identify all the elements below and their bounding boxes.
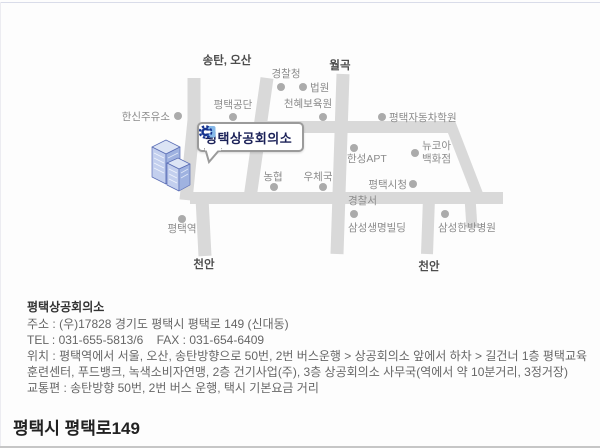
map-place-samsung-life-building: 삼성생명빌딩	[348, 210, 406, 234]
place-dot	[378, 113, 386, 121]
map-place-hanseong-apt: 한성APT	[347, 144, 387, 165]
location-line: 위치 : 평택역에서 서울, 오산, 송탄방향으로 50번, 2번 버스운행 >…	[27, 348, 590, 380]
road-segment	[202, 198, 205, 256]
map-place-pyeongtaek-industrial-complex: 평택공단	[214, 99, 253, 121]
place-label: 경찰청	[272, 67, 301, 80]
map-place-police-agency: 경찰청	[272, 67, 301, 91]
callout-tail	[203, 148, 223, 164]
callout-label: 평택상공회의소	[205, 128, 292, 147]
place-dot	[319, 113, 327, 121]
direction-label-wolgok: 월곡	[329, 58, 351, 72]
place-dot	[319, 183, 327, 191]
place-label: 삼성생명빌딩	[348, 222, 406, 234]
place-label: 삼성한방병원	[438, 222, 496, 234]
place-dot	[270, 183, 278, 191]
road-segment	[450, 123, 479, 198]
place-label: 백화점	[422, 153, 451, 165]
place-label: 법원	[310, 82, 329, 94]
map-place-pyeongtaek-driving-school: 평택자동차학원	[378, 112, 457, 124]
map-place-hanshin-gas-station: 한신주유소	[122, 111, 182, 123]
map-place-pyeongtaek-station: 평택역	[168, 215, 197, 235]
building-icon	[152, 140, 190, 191]
map-callout: 평택상공회의소	[197, 122, 304, 152]
location-map: 한신주유소평택공단경찰청법원천혜보육원평택자동차학원뉴코아백화점한성APT평택시…	[0, 0, 600, 292]
transport-line: 교통편 : 송탄방향 50번, 2번 버스 운행, 택시 기본요금 거리	[27, 380, 590, 396]
place-label: 천혜보육원	[284, 98, 332, 110]
place-label: 평택역	[168, 223, 197, 235]
page-title: 평택시 평택로149	[13, 414, 140, 439]
map-place-court: 법원	[299, 82, 329, 94]
chamber-logo-icon	[199, 124, 216, 140]
info-block: 평택상공회의소 주소 : (우)17828 경기도 평택시 평택로 149 (신…	[27, 299, 590, 396]
place-label: 경찰서	[348, 194, 377, 207]
place-dot	[350, 210, 358, 218]
map-place-pyeongtaek-city-hall: 평택시청	[368, 179, 417, 191]
place-dot	[441, 210, 449, 218]
place-dot	[409, 180, 417, 188]
direction-label-cheonan-right: 천안	[418, 259, 440, 273]
place-dot	[178, 215, 186, 223]
place-dot	[277, 83, 285, 91]
place-label: 한신주유소	[122, 111, 171, 123]
map-place-nonghyup: 농협	[263, 170, 282, 191]
info-title: 평택상공회의소	[27, 299, 590, 315]
road-segment	[337, 74, 343, 254]
map-place-newcore-department-store: 뉴코아백화점	[411, 140, 451, 165]
place-label: 평택공단	[214, 99, 253, 111]
place-dot	[299, 83, 307, 91]
place-dot	[174, 112, 182, 120]
address-line: 주소 : (우)17828 경기도 평택시 평택로 149 (신대동)	[27, 316, 590, 332]
place-label: 우체국	[304, 171, 333, 183]
map-place-post-office: 우체국	[304, 171, 333, 191]
place-dot	[411, 149, 419, 157]
place-label: 농협	[263, 170, 282, 183]
place-dot	[350, 144, 358, 152]
place-dot	[229, 113, 237, 121]
direction-label-cheonan-left: 천안	[193, 257, 215, 271]
place-label: 한성APT	[347, 153, 387, 165]
map-place-cheonhye-nursery: 천혜보육원	[284, 98, 332, 121]
tel-fax-line: TEL : 031-655-5813/6 FAX : 031-654-6409	[27, 332, 590, 348]
road-segment	[427, 198, 429, 254]
direction-label-songtan-osan: 송탄, 오산	[203, 53, 252, 67]
place-label: 뉴코아	[422, 140, 451, 152]
map-place-police-station: 경찰서	[348, 194, 377, 207]
place-label: 평택시청	[368, 179, 407, 191]
road-segment	[186, 120, 194, 200]
place-label: 평택자동차학원	[389, 112, 457, 124]
